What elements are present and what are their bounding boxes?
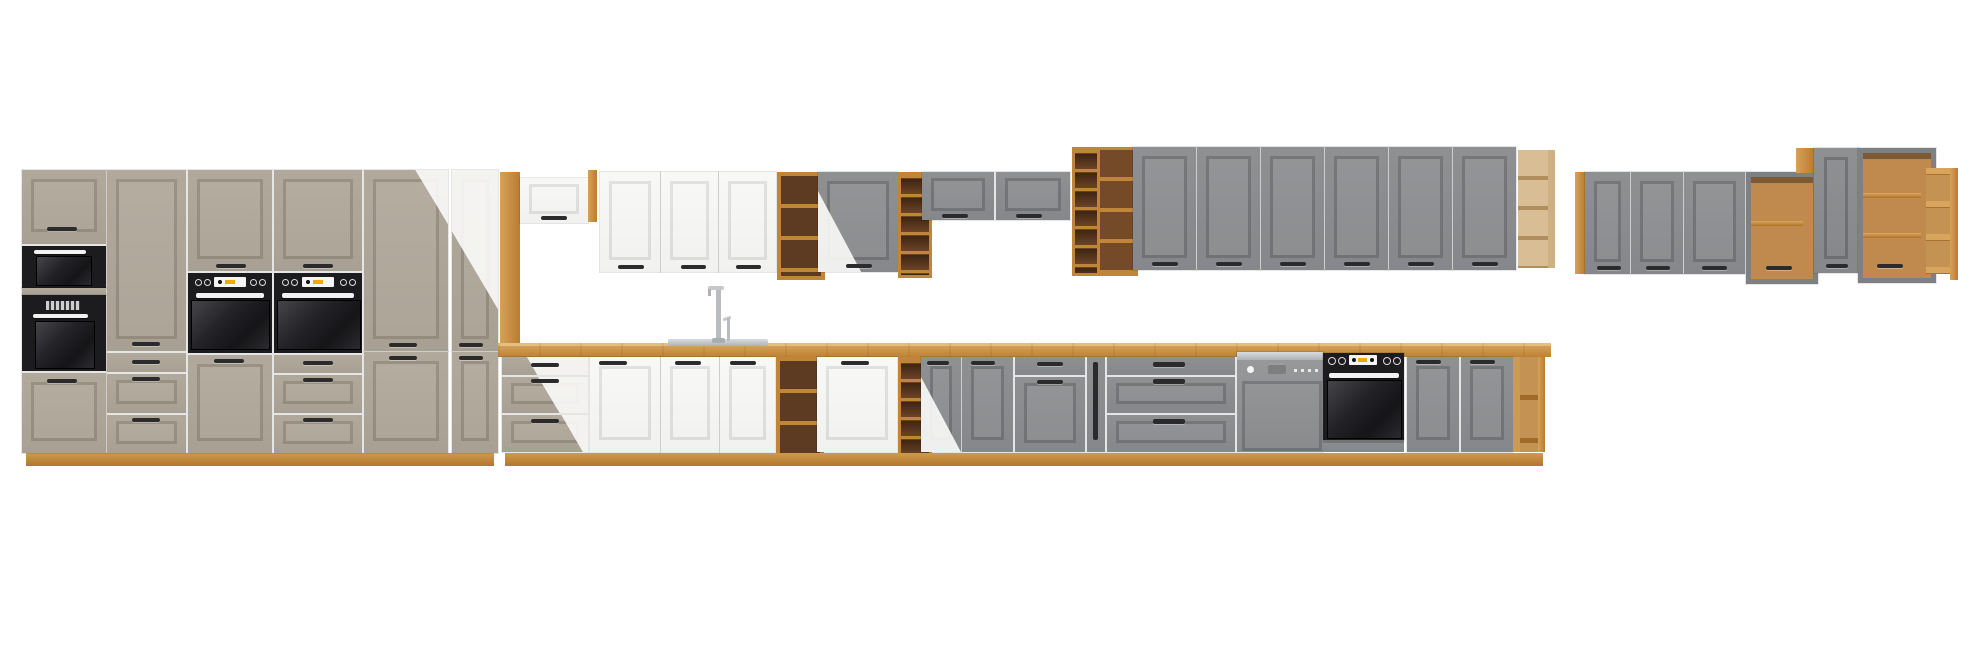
oven-knob xyxy=(1383,357,1391,365)
dishwasher xyxy=(1237,352,1323,452)
oven-display-dot xyxy=(218,280,222,284)
base-door-white3-sink xyxy=(720,357,775,452)
color-sweep-white xyxy=(818,172,898,272)
oven-display xyxy=(302,277,334,287)
oven-glass xyxy=(1327,380,1402,439)
oven-display-orange xyxy=(313,280,323,284)
tap-spout-column xyxy=(716,287,721,341)
pullout-vertical-handle xyxy=(1093,362,1098,440)
base-door-transition xyxy=(921,357,961,452)
door-handle xyxy=(1016,214,1042,218)
end-shelf-side-panel xyxy=(1950,168,1958,280)
oven-knob xyxy=(282,279,289,286)
door-handle xyxy=(47,379,77,383)
color-sweep-white xyxy=(452,170,498,351)
door-handle xyxy=(1408,262,1434,266)
oven-knob xyxy=(349,279,356,286)
drawer-handle xyxy=(303,361,333,365)
drawer-handle xyxy=(1153,362,1185,367)
door-handle xyxy=(216,264,246,268)
built-in-oven-mid2 xyxy=(274,273,362,353)
door-handle xyxy=(1597,266,1621,270)
shelf xyxy=(1751,221,1803,226)
drawer-handle xyxy=(531,379,559,383)
base-unit-drawer-over-door-top xyxy=(1015,357,1085,375)
base-door-white2-sink xyxy=(661,357,719,452)
door-handle xyxy=(1646,266,1670,270)
wall-cabinet-white1 xyxy=(600,172,660,272)
door-handle xyxy=(971,361,995,365)
oven-glass xyxy=(191,300,270,350)
door-handle xyxy=(1344,262,1370,266)
wall-cabinet-grey-tall-narrow xyxy=(1814,148,1858,273)
tall-unit3-bottom-door xyxy=(188,355,272,453)
wall-corner-end-shelf-oak xyxy=(1926,168,1952,274)
oven-display-dot xyxy=(1352,358,1356,362)
tall-unit5-bottom-door xyxy=(364,352,448,453)
oven-handle-bar xyxy=(196,293,264,298)
dishwasher-indicator-dots xyxy=(1294,369,1318,372)
corner-post-oak xyxy=(500,172,520,345)
door-handle xyxy=(459,356,483,360)
drawer-handle xyxy=(531,419,559,423)
wall-lift-cabinet-grey1 xyxy=(922,172,994,220)
shelf xyxy=(1863,193,1921,198)
door-handle xyxy=(730,361,756,365)
door-handle xyxy=(303,264,333,268)
tall-unit3-top-door xyxy=(188,170,272,271)
door-recessed-panel xyxy=(1824,157,1848,259)
door-handle xyxy=(132,342,160,346)
dishwasher-panel xyxy=(1242,381,1322,451)
door-handle xyxy=(1702,266,1727,270)
door-handle xyxy=(389,356,417,360)
wall-cabinet-white2 xyxy=(661,172,718,272)
door-handle xyxy=(1416,360,1441,364)
base-door-grey1 xyxy=(962,357,1013,452)
tap-side-spray xyxy=(727,318,730,341)
oven-knob xyxy=(195,279,202,286)
tap-spout-drop xyxy=(708,289,711,296)
tall-unit1-shelf-strip xyxy=(22,288,106,295)
drawer-handle xyxy=(132,360,160,364)
tall-unit2-door xyxy=(107,170,186,351)
oven-knob xyxy=(204,279,211,286)
oak-step-block xyxy=(1796,148,1814,173)
wall-cabinet-grey-r3 xyxy=(1684,172,1745,274)
door-handle xyxy=(599,361,627,365)
door-handle xyxy=(214,359,244,363)
oven-knob xyxy=(1393,357,1401,365)
oven-plinth-drawer xyxy=(1323,440,1404,452)
plinth-left-run xyxy=(26,453,494,466)
color-sweep-white xyxy=(364,170,448,351)
door-handle xyxy=(1472,262,1498,266)
base-end-shelf-side-panel xyxy=(1538,357,1545,452)
drawer-handle xyxy=(1037,362,1063,366)
color-sweep-white xyxy=(921,357,961,452)
oven-glass xyxy=(277,300,361,350)
base-door-white4 xyxy=(817,357,897,452)
oven-display-dot xyxy=(306,280,310,284)
built-in-oven-base xyxy=(1323,353,1404,440)
door-handle xyxy=(541,216,567,220)
tap-base xyxy=(712,338,725,343)
drawer-handle xyxy=(303,378,333,382)
drawer-handle xyxy=(132,418,160,422)
door-handle xyxy=(927,361,949,365)
door-handle xyxy=(675,361,701,365)
dishwasher-latch xyxy=(1268,363,1286,374)
built-in-oven-left xyxy=(22,295,106,371)
oven-display xyxy=(46,301,80,310)
wall-end-shelf-pale-oak xyxy=(1518,150,1555,268)
tall-unit1-bottom-door xyxy=(22,373,106,453)
wall-open-cabinet-oak-interior2 xyxy=(1858,148,1936,283)
wall-cabinet-grey-d5 xyxy=(1389,147,1452,270)
wall-open-shelf-tall-oak xyxy=(1097,147,1138,276)
wall-cabinet-grey-d6 xyxy=(1453,147,1516,270)
door-handle xyxy=(618,265,644,269)
door-handle xyxy=(47,227,77,231)
oven-knob xyxy=(250,279,257,286)
wall-cabinet-grey-d2 xyxy=(1197,147,1260,270)
oven-knob xyxy=(1328,357,1336,365)
door-handle xyxy=(1216,262,1242,266)
drawer-handle xyxy=(303,418,333,422)
wall-cabinet-grey-d1 xyxy=(1133,147,1196,270)
oak-filler-strip-right xyxy=(1575,172,1585,274)
dishwasher-top-strip xyxy=(1237,352,1323,360)
kitchen-render-canvas xyxy=(0,0,1980,656)
door-handle xyxy=(1280,262,1306,266)
oven-knob xyxy=(1338,357,1346,365)
drawer-handle xyxy=(1153,419,1185,424)
wall-cabinet-grey-d4 xyxy=(1325,147,1388,270)
tall-unit4-top-door xyxy=(274,170,362,271)
wall-cabinet-grey-r2 xyxy=(1631,172,1683,274)
wall-cabinet-grey-d3 xyxy=(1261,147,1324,270)
shelf xyxy=(1863,233,1921,238)
oven-display-orange xyxy=(1358,358,1367,362)
oven-display xyxy=(214,277,246,287)
tall-unit5-door xyxy=(364,170,448,351)
door-handle xyxy=(846,264,872,268)
microwave-handle-bar xyxy=(34,250,86,254)
built-in-oven-mid1 xyxy=(188,273,272,353)
oak-filler-strip xyxy=(588,170,597,222)
door-handle xyxy=(1470,360,1495,364)
wall-cabinet-grey-r1 xyxy=(1585,172,1630,274)
base-unit-drawer-over-door-door xyxy=(1015,377,1085,452)
oven-knob xyxy=(340,279,347,286)
drawer-handle xyxy=(132,377,160,381)
plinth-base-run xyxy=(505,453,1543,466)
oven-display xyxy=(1349,355,1377,365)
drawer-handle xyxy=(1153,379,1185,384)
wall-cabinet-grey-transition xyxy=(818,172,898,272)
door-handle xyxy=(942,214,968,218)
oven-handle-bar xyxy=(282,293,354,298)
tall-unit6-door xyxy=(452,170,498,351)
built-in-microwave xyxy=(22,246,106,288)
door-handle xyxy=(1826,264,1848,268)
door-handle xyxy=(1766,266,1792,270)
door-handle xyxy=(736,265,761,269)
oven-handle-bar xyxy=(1329,373,1399,378)
oven-handle-bar xyxy=(33,314,88,318)
base-door-grey2 xyxy=(1407,357,1459,452)
wall-cabinet-white3 xyxy=(719,172,776,272)
door-handle xyxy=(389,343,417,347)
oven-display-dot xyxy=(1370,358,1374,362)
door-handle xyxy=(1877,264,1903,268)
oven-display-orange xyxy=(225,280,235,284)
base-door-white1 xyxy=(590,357,660,452)
door-handle xyxy=(1152,262,1178,266)
door-handle xyxy=(1037,380,1063,384)
oven-knob xyxy=(291,279,298,286)
wall-lift-cabinet-grey2 xyxy=(996,172,1070,220)
drawer-handle xyxy=(531,363,559,367)
oven-knob xyxy=(259,279,266,286)
microwave-glass xyxy=(36,256,92,286)
door-handle xyxy=(459,343,483,347)
dishwasher-power-button xyxy=(1247,366,1254,373)
tall-unit6-bottom-door xyxy=(452,352,498,453)
base-door-grey3 xyxy=(1461,357,1513,452)
tall-unit1-top-door xyxy=(22,170,106,244)
door-handle xyxy=(681,265,706,269)
oven-glass xyxy=(35,321,95,369)
door-handle xyxy=(841,361,869,365)
